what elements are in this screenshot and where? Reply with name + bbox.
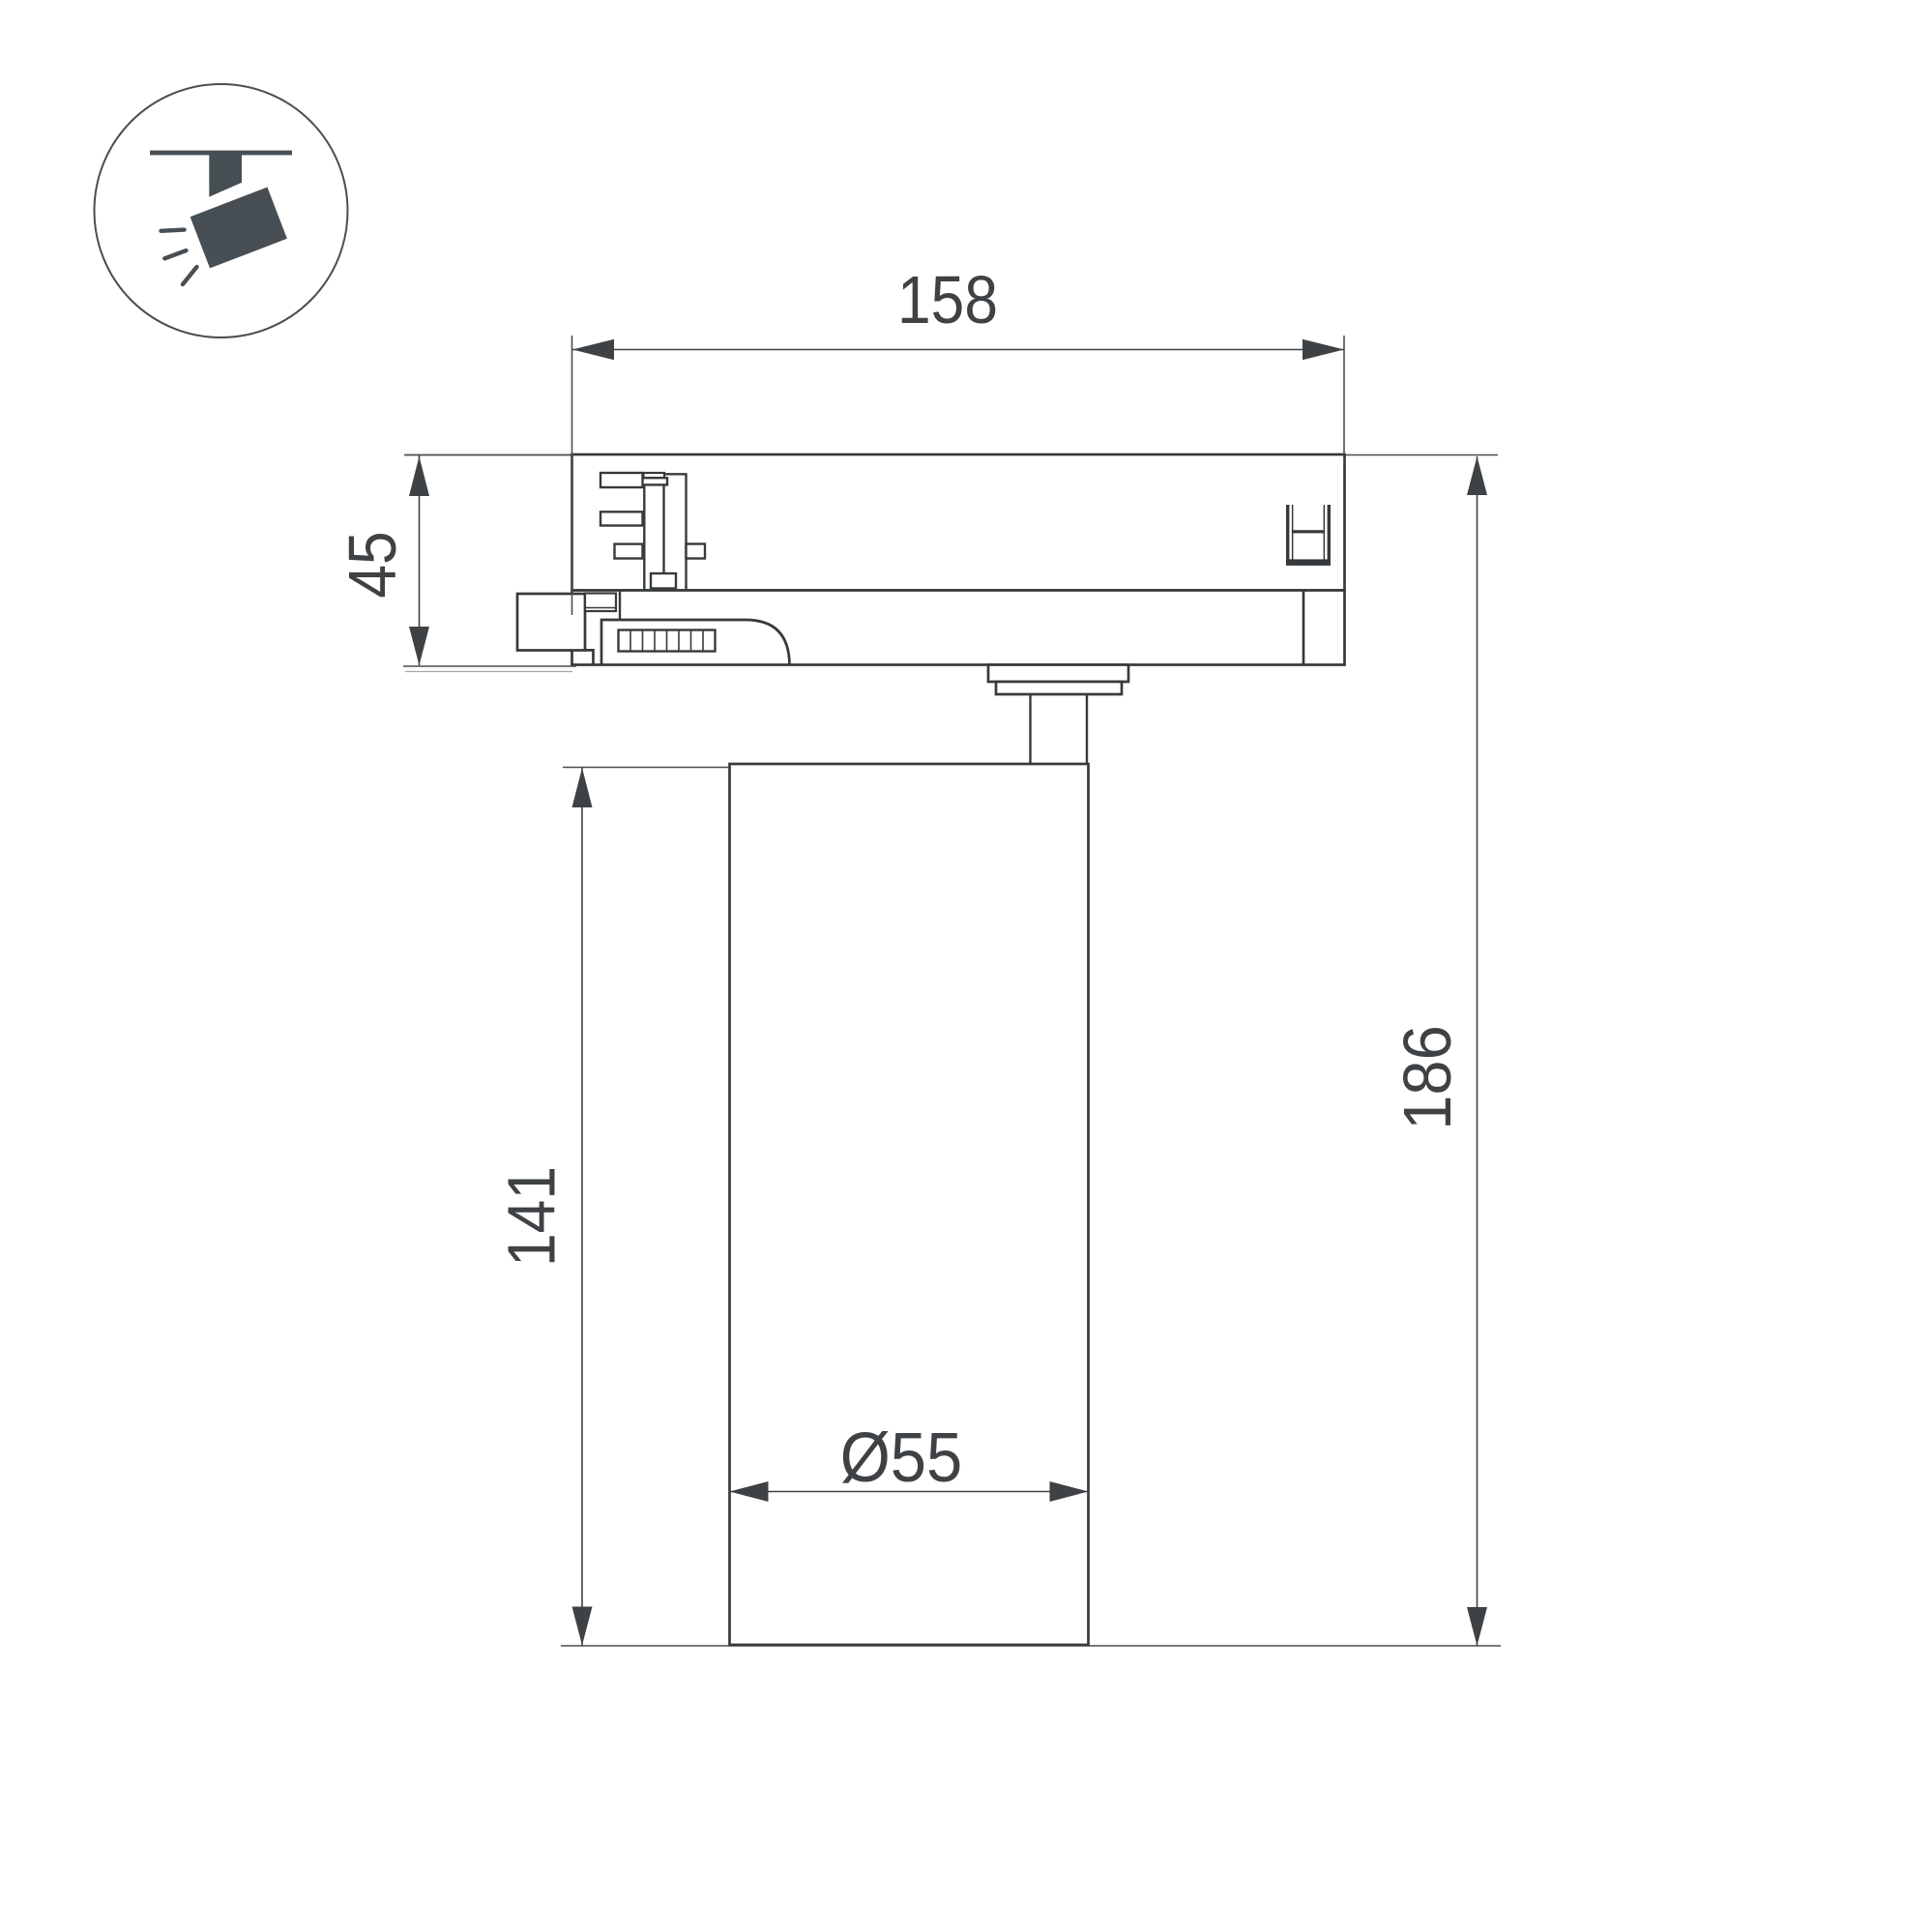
svg-text:186: 186 [1390, 1025, 1466, 1130]
svg-text:158: 158 [897, 263, 998, 338]
svg-text:Ø55: Ø55 [840, 1419, 963, 1497]
svg-text:45: 45 [336, 531, 411, 598]
svg-text:141: 141 [494, 1166, 570, 1267]
